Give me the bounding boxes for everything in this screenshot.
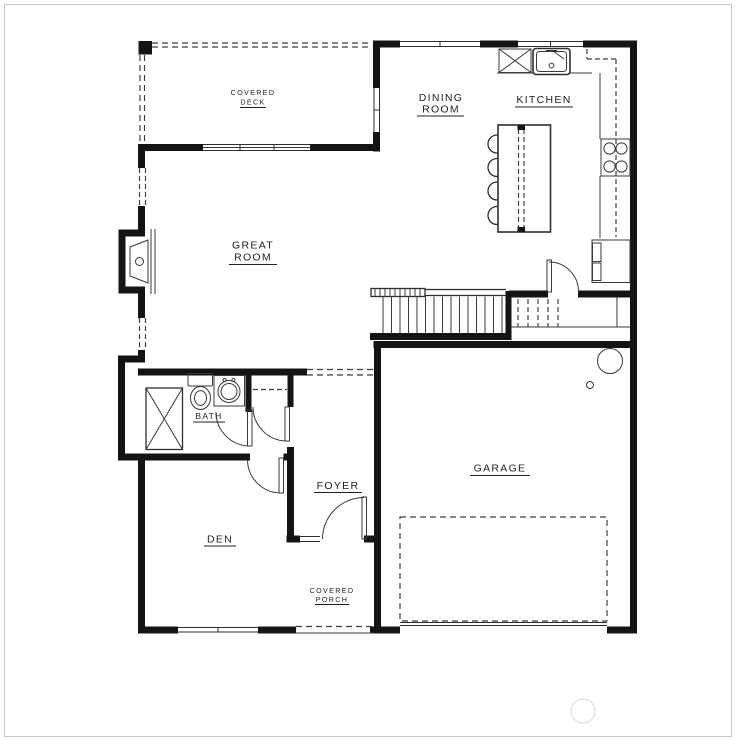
stair-railing-balusters xyxy=(375,289,420,297)
label-dining-1: DINING xyxy=(419,92,464,104)
dishwasher-x xyxy=(499,49,531,73)
window-dining-west xyxy=(374,88,380,132)
door-swing-den xyxy=(248,460,282,494)
label-great-room-2: ROOM xyxy=(234,252,272,264)
label-den: DEN xyxy=(207,534,233,546)
opening-header-foyer xyxy=(307,370,374,376)
garage-equipment xyxy=(587,349,623,389)
door-leaf-den xyxy=(279,458,284,493)
label-covered-deck-1: COVERED xyxy=(231,88,276,97)
door-leaf-closet xyxy=(285,407,290,441)
water-heater xyxy=(598,349,623,374)
wall-fireplace-bump xyxy=(122,230,145,294)
island-post-bottom xyxy=(518,227,526,232)
burner-1 xyxy=(604,143,615,154)
deck-post xyxy=(139,41,153,55)
fireplace-face xyxy=(151,229,155,294)
stair-railing xyxy=(371,289,425,297)
fireplace-gas-outlet xyxy=(136,258,144,266)
window-front-sidelite xyxy=(300,537,320,542)
bath-faucet-2 xyxy=(232,378,235,381)
floor-drain xyxy=(587,382,594,389)
label-garage: GARAGE xyxy=(474,463,527,475)
door-leaf-bath xyxy=(248,410,253,446)
window-den-south xyxy=(178,628,258,633)
doors xyxy=(216,260,579,539)
window-dining-top xyxy=(400,42,480,47)
label-great-room-1: GREAT xyxy=(232,240,274,252)
label-dining-2: ROOM xyxy=(422,104,460,116)
door-leaf-front xyxy=(362,497,367,539)
kitchen-fixtures xyxy=(488,49,630,283)
window-kitchen-top xyxy=(518,42,583,47)
bath-faucet-1 xyxy=(223,378,226,381)
toilet-bowl-inner xyxy=(195,391,207,406)
watermark-circle xyxy=(571,699,595,723)
garage-door-overhead xyxy=(400,517,607,621)
label-foyer: FOYER xyxy=(317,480,360,492)
stair-lower-flight-dashed xyxy=(518,299,558,327)
refrigerator-door-2 xyxy=(593,263,602,281)
stair-half-wall xyxy=(425,290,506,296)
label-bath: BATH xyxy=(195,411,222,421)
label-covered-porch-1: COVERED xyxy=(310,586,355,595)
deck-open-edge-top xyxy=(152,43,371,47)
fireplace-firebox xyxy=(130,240,148,283)
window-above-greatroom-2 xyxy=(140,318,146,350)
burner-3 xyxy=(604,161,615,172)
stair-treads xyxy=(383,297,502,334)
walls xyxy=(118,41,637,634)
burner-4 xyxy=(616,161,627,172)
deck-open-edge-left xyxy=(140,55,145,143)
floor-plan-sheet: COVERED DECK DINING ROOM KITCHEN GREAT R… xyxy=(0,0,736,741)
burner-2 xyxy=(616,143,627,154)
label-covered-porch-2: PORCH xyxy=(316,595,348,604)
stair-landing-lines xyxy=(512,298,631,328)
door-swing-closet xyxy=(253,407,287,441)
toilet-bowl xyxy=(191,387,211,410)
door-swing-landing xyxy=(549,262,579,292)
fireplace xyxy=(130,229,155,294)
label-kitchen: KITCHEN xyxy=(516,94,571,106)
shower-x xyxy=(146,388,183,450)
door-swing-front xyxy=(323,498,365,540)
bath-sink-inner xyxy=(221,384,237,400)
label-covered-deck-2: DECK xyxy=(240,98,265,107)
refrigerator-door-1 xyxy=(593,243,602,262)
window-above-greatroom-1 xyxy=(140,168,146,206)
garage-door-line xyxy=(400,623,607,626)
floor-plan-drawing: COVERED DECK DINING ROOM KITCHEN GREAT R… xyxy=(0,0,736,741)
island-post-top xyxy=(518,125,526,130)
door-leaf-landing xyxy=(547,260,552,292)
kitchen-sink xyxy=(533,49,570,75)
